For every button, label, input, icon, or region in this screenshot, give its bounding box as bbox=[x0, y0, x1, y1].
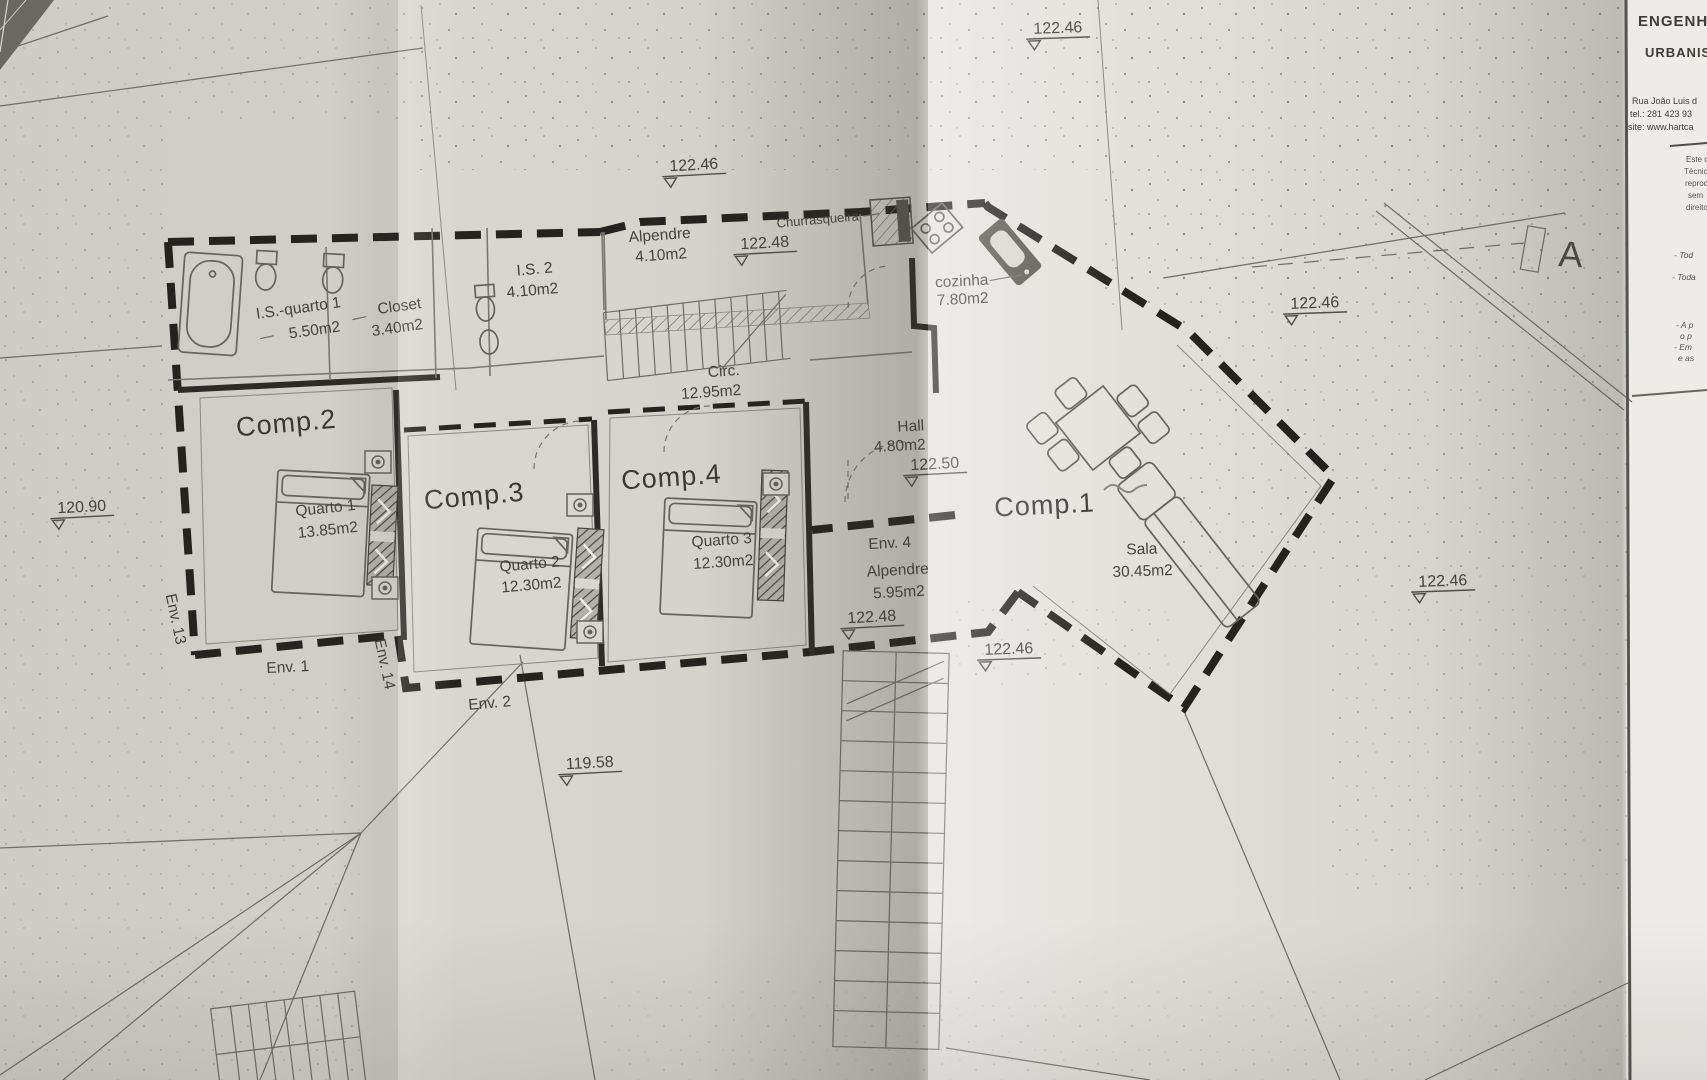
svg-text:122.46: 122.46 bbox=[1290, 294, 1340, 313]
svg-text:120.90: 120.90 bbox=[57, 498, 107, 518]
svg-text:119.58: 119.58 bbox=[565, 754, 614, 773]
svg-text:Este d: Este d bbox=[1686, 155, 1707, 164]
env1-label: Env. 1 bbox=[266, 658, 310, 677]
floorplan-photo: { "colors": { "paper": "#d8d5d0", "paper… bbox=[0, 0, 1707, 1080]
title-notes: Este d Técnico reprod sem direito bbox=[1684, 155, 1707, 212]
svg-text:- Tod: - Tod bbox=[1674, 250, 1693, 260]
company-phone: tel.: 281 423 93 bbox=[1630, 109, 1692, 119]
svg-text:4.10m2: 4.10m2 bbox=[635, 245, 688, 266]
svg-text:Técnico: Técnico bbox=[1684, 167, 1707, 176]
svg-text:- A p: - A p bbox=[1676, 320, 1694, 330]
company-dept: URBANIS bbox=[1645, 45, 1707, 60]
svg-text:reprod: reprod bbox=[1685, 179, 1707, 188]
floorplan-drawing: Comp.2 Comp.3 Comp.4 Comp.1 Quarto 1 13.… bbox=[0, 0, 1707, 1080]
company-name: ENGENHA bbox=[1638, 13, 1707, 30]
svg-text:I.S. 2: I.S. 2 bbox=[516, 259, 554, 279]
company-website: site: www.hartca bbox=[1628, 122, 1694, 132]
svg-text:e as: e as bbox=[1678, 353, 1695, 363]
company-address: Rua João Luis d bbox=[1632, 96, 1697, 106]
svg-text:direito: direito bbox=[1686, 203, 1707, 212]
svg-text:- Em: - Em bbox=[1674, 342, 1692, 352]
svg-text:o p: o p bbox=[1680, 331, 1692, 341]
svg-text:sem: sem bbox=[1688, 191, 1703, 200]
svg-text:- Toda: - Toda bbox=[1672, 272, 1696, 282]
svg-text:Sala: Sala bbox=[1126, 540, 1158, 558]
